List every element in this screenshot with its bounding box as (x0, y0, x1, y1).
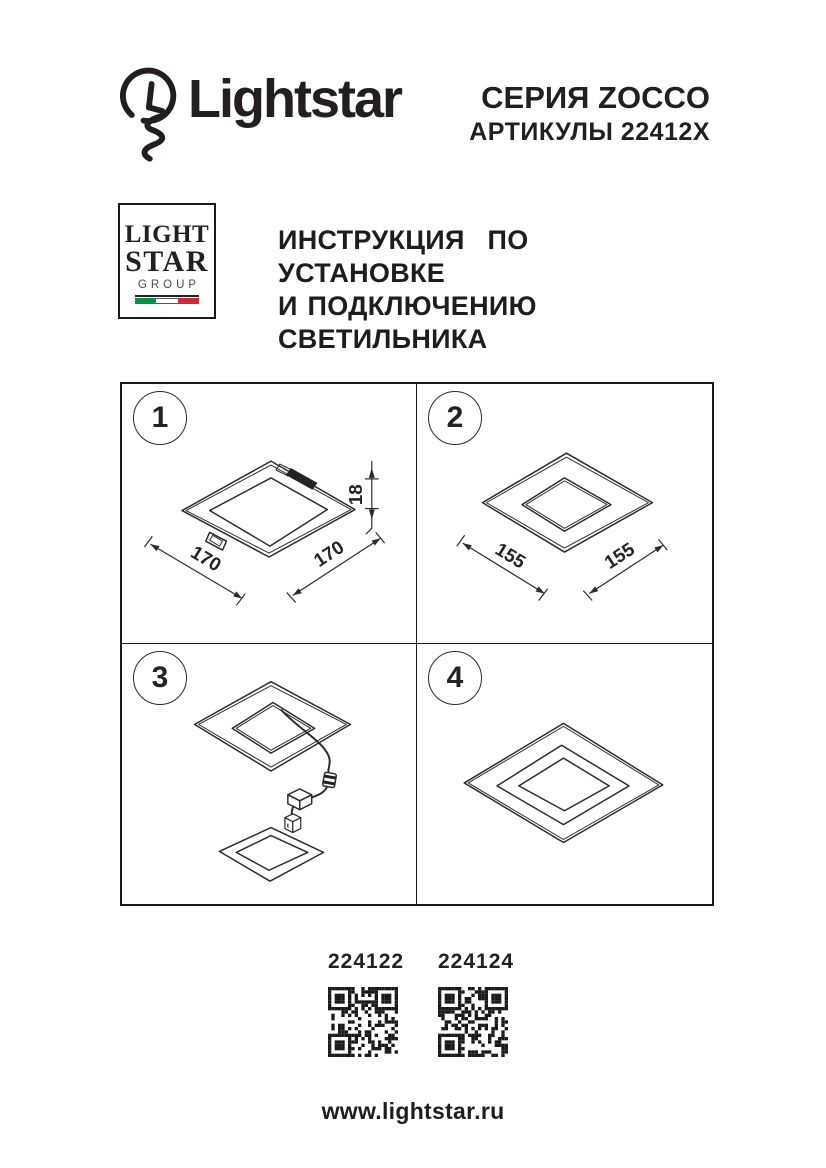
product-224122: 224122 (328, 950, 398, 1057)
series-block: СЕРИЯ ZOCCO АРТИКУЛЫ 22412Х (469, 82, 710, 145)
article-qr-section: 224122 224124 (0, 950, 826, 1057)
logo-line-star: STAR (120, 247, 214, 276)
qr-code (438, 987, 508, 1057)
italian-flag (135, 298, 199, 304)
logo-line-light: LIGHT (120, 222, 214, 247)
lightstar-group-logo: LIGHT STAR GROUP (118, 203, 216, 319)
step-1-number: 1 (133, 391, 187, 445)
flag-green (135, 298, 156, 304)
step-3-panel: 3 (122, 644, 417, 904)
flag-red (178, 298, 199, 304)
dim-height-value: 18 (345, 484, 366, 505)
dim-right-value: 155 (600, 538, 638, 573)
step-2-number: 2 (428, 391, 482, 445)
step-2-panel: 2 155 (417, 384, 712, 644)
panel-connector (285, 814, 301, 833)
dim-height (365, 461, 379, 534)
lightstar-brand: Lightstar (112, 56, 422, 171)
title-line-1: ИНСТРУКЦИЯ ПО УСТАНОВКЕ (278, 224, 714, 290)
flag-divider (135, 295, 199, 297)
articles-line: АРТИКУЛЫ 22412Х (469, 120, 710, 145)
brand-wordmark: Lightstar (188, 68, 401, 130)
qr-code (328, 987, 398, 1057)
series-name: СЕРИЯ ZOCCO (469, 82, 710, 113)
step-3-number: 3 (133, 651, 187, 705)
website-url: www.lightstar.ru (0, 1098, 826, 1125)
article-number: 224124 (438, 950, 508, 974)
lightstar-bulb-icon (112, 60, 184, 172)
driver-box (288, 789, 312, 810)
page-title: ИНСТРУКЦИЯ ПО УСТАНОВКЕ И ПОДКЛЮЧЕНИЮ СВ… (278, 224, 714, 356)
instruction-sheet: Lightstar СЕРИЯ ZOCCO АРТИКУЛЫ 22412Х LI… (0, 0, 826, 1168)
article-number: 224122 (328, 950, 398, 974)
dim-right-value: 170 (310, 536, 348, 571)
step-4-panel: 4 (417, 644, 712, 904)
flag-white (156, 298, 177, 304)
step-1-panel: 1 (122, 384, 417, 644)
product-224124: 224124 (438, 950, 508, 1057)
title-line-2: И ПОДКЛЮЧЕНИЮ СВЕТИЛЬНИКА (278, 290, 714, 356)
cable-connector (322, 772, 336, 788)
dim-left-value: 155 (492, 538, 530, 572)
step-4-number: 4 (428, 651, 482, 705)
steps-grid: 1 (120, 382, 714, 906)
logo-line-group: GROUP (120, 279, 214, 291)
